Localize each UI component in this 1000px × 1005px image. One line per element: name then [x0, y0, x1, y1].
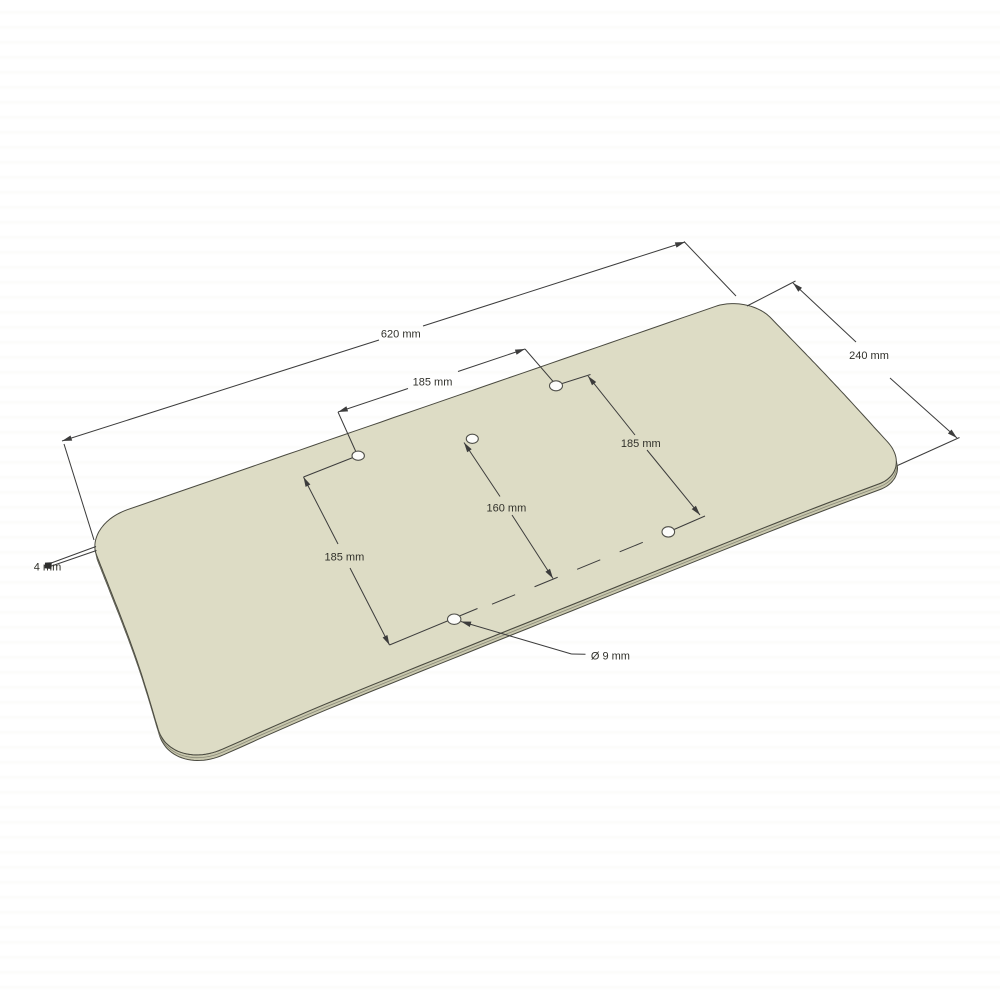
svg-text:620 mm: 620 mm: [381, 329, 421, 341]
svg-text:Ø 9 mm: Ø 9 mm: [591, 650, 630, 662]
svg-text:4 mm: 4 mm: [34, 562, 62, 574]
svg-text:185 mm: 185 mm: [413, 376, 453, 388]
svg-text:240 mm: 240 mm: [849, 350, 889, 362]
svg-text:160 mm: 160 mm: [487, 503, 527, 515]
svg-text:185 mm: 185 mm: [325, 552, 365, 564]
svg-text:185 mm: 185 mm: [621, 438, 661, 450]
